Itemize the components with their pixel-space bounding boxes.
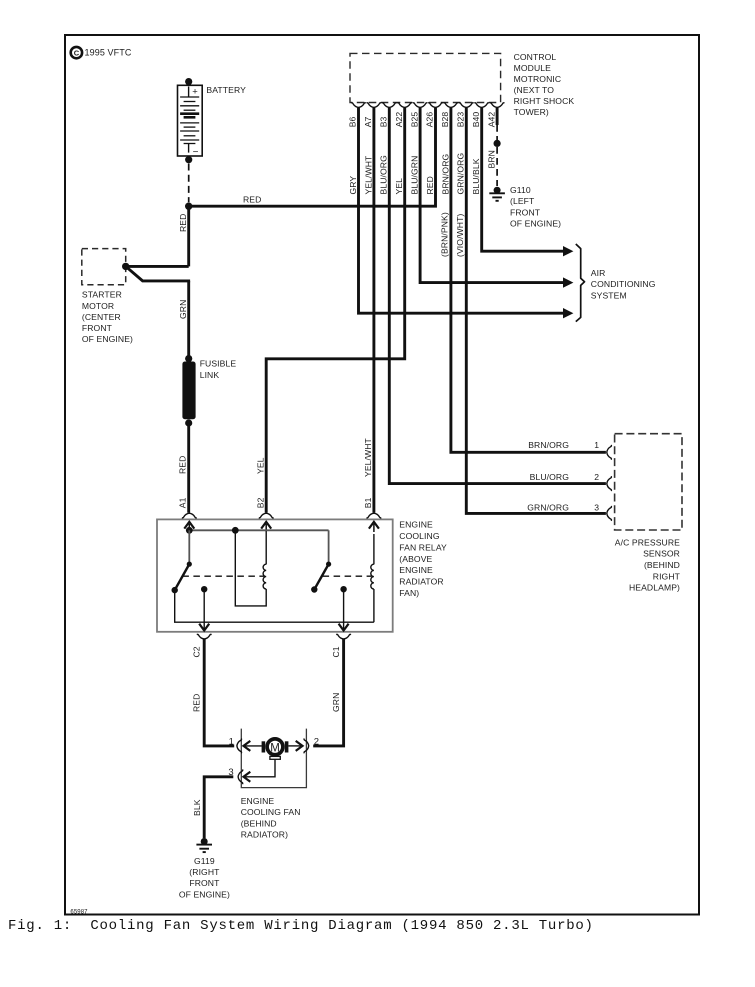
svg-text:YEL/WHT: YEL/WHT [363,155,373,195]
svg-text:SYSTEM: SYSTEM [591,291,627,301]
svg-text:A7: A7 [363,116,373,127]
svg-text:OF ENGINE): OF ENGINE) [179,889,230,899]
svg-text:CONDITIONING: CONDITIONING [591,279,656,289]
svg-text:(ABOVE: (ABOVE [399,554,432,564]
svg-text:(BEHIND: (BEHIND [241,818,277,828]
svg-text:ENGINE: ENGINE [399,565,433,575]
svg-text:RADIATOR): RADIATOR) [241,830,288,840]
svg-text:MOTOR: MOTOR [82,301,114,311]
svg-text:RIGHT: RIGHT [653,571,681,581]
svg-text:A/C PRESSURE: A/C PRESSURE [615,537,680,547]
svg-text:LINK: LINK [200,370,220,380]
svg-text:BRN: BRN [487,150,497,168]
svg-text:A1: A1 [178,497,188,508]
svg-text:(LEFT: (LEFT [510,196,535,206]
svg-text:(NEXT TO: (NEXT TO [514,85,555,95]
svg-text:G119: G119 [194,856,215,866]
svg-text:B3: B3 [379,116,389,127]
svg-text:CONTROL: CONTROL [514,52,557,62]
svg-text:BLK: BLK [192,799,202,816]
svg-text:RADIATOR: RADIATOR [399,577,443,587]
svg-text:YEL: YEL [255,457,265,474]
svg-text:COOLING: COOLING [399,531,440,541]
svg-text:OF ENGINE): OF ENGINE) [82,334,133,344]
svg-text:65987: 65987 [70,910,88,916]
svg-text:RIGHT SHOCK: RIGHT SHOCK [514,96,575,106]
svg-text:RED: RED [178,456,188,474]
svg-text:MODULE: MODULE [514,63,552,73]
svg-text:GRN/ORG: GRN/ORG [527,502,569,512]
svg-text:(BEHIND: (BEHIND [644,560,680,570]
svg-text:YEL: YEL [394,178,404,195]
svg-text:GRN: GRN [178,300,188,319]
svg-text:(VIO/WHT): (VIO/WHT) [455,214,465,257]
svg-text:M: M [270,743,280,755]
svg-text:BLU/ORG: BLU/ORG [379,155,389,195]
svg-text:FRONT: FRONT [82,323,113,333]
svg-text:1995 VFTC: 1995 VFTC [85,48,132,58]
svg-text:BATTERY: BATTERY [206,85,246,95]
svg-text:BLU/BLK: BLU/BLK [471,158,481,194]
svg-text:(BRN/PNK): (BRN/PNK) [440,212,450,257]
svg-text:B2: B2 [255,497,265,508]
svg-text:BRN/ORG: BRN/ORG [528,440,569,450]
svg-text:FAN): FAN) [399,588,419,598]
svg-text:BLU/GRN: BLU/GRN [410,156,420,195]
svg-text:2: 2 [594,472,599,482]
svg-text:A22: A22 [394,112,404,128]
svg-text:GRY: GRY [348,176,358,195]
svg-text:C: C [74,48,80,57]
svg-text:GRN: GRN [331,693,341,712]
svg-text:+: + [192,86,198,97]
svg-text:FAN RELAY: FAN RELAY [399,542,447,552]
svg-text:1: 1 [594,440,599,450]
svg-text:B23: B23 [456,112,466,128]
svg-text:B1: B1 [363,497,373,508]
svg-text:RED: RED [178,214,188,232]
svg-text:RED: RED [192,694,202,712]
svg-text:2: 2 [314,737,319,748]
svg-text:OF ENGINE): OF ENGINE) [510,219,561,229]
svg-text:(RIGHT: (RIGHT [189,867,220,877]
svg-text:−: − [193,147,199,158]
svg-text:B6: B6 [348,116,358,127]
svg-text:HEADLAMP): HEADLAMP) [629,583,680,593]
svg-text:1: 1 [229,737,234,748]
svg-text:RED: RED [425,176,435,194]
svg-text:STARTER: STARTER [82,290,122,300]
svg-text:B40: B40 [471,112,481,128]
svg-text:ENGINE: ENGINE [241,796,275,806]
svg-text:ENGINE: ENGINE [399,520,433,530]
svg-text:MOTRONIC: MOTRONIC [514,74,562,84]
svg-text:A42: A42 [486,112,496,128]
svg-text:YEL/WHT: YEL/WHT [363,437,373,477]
svg-text:SENSOR: SENSOR [643,549,680,559]
svg-text:B25: B25 [409,112,419,128]
svg-text:G110: G110 [510,185,531,195]
svg-text:A26: A26 [425,112,435,128]
svg-text:3: 3 [594,502,599,512]
svg-text:FRONT: FRONT [189,878,220,888]
svg-text:BLU/ORG: BLU/ORG [530,472,570,482]
svg-text:COOLING FAN: COOLING FAN [241,807,301,817]
svg-text:(CENTER: (CENTER [82,312,121,322]
svg-text:TOWER): TOWER) [514,107,549,117]
svg-text:AIR: AIR [591,268,606,278]
svg-text:GRN/ORG: GRN/ORG [456,153,466,195]
svg-text:FRONT: FRONT [510,207,541,217]
svg-text:RED: RED [243,194,261,204]
svg-text:FUSIBLE: FUSIBLE [200,359,237,369]
svg-text:B28: B28 [440,112,450,128]
svg-text:Fig. 1: Cooling Fan System Wi: Fig. 1: Cooling Fan System Wiring Diagra… [8,918,594,934]
svg-text:BRN/ORG: BRN/ORG [440,153,450,194]
svg-text:C1: C1 [331,646,341,657]
svg-text:C2: C2 [192,646,202,657]
